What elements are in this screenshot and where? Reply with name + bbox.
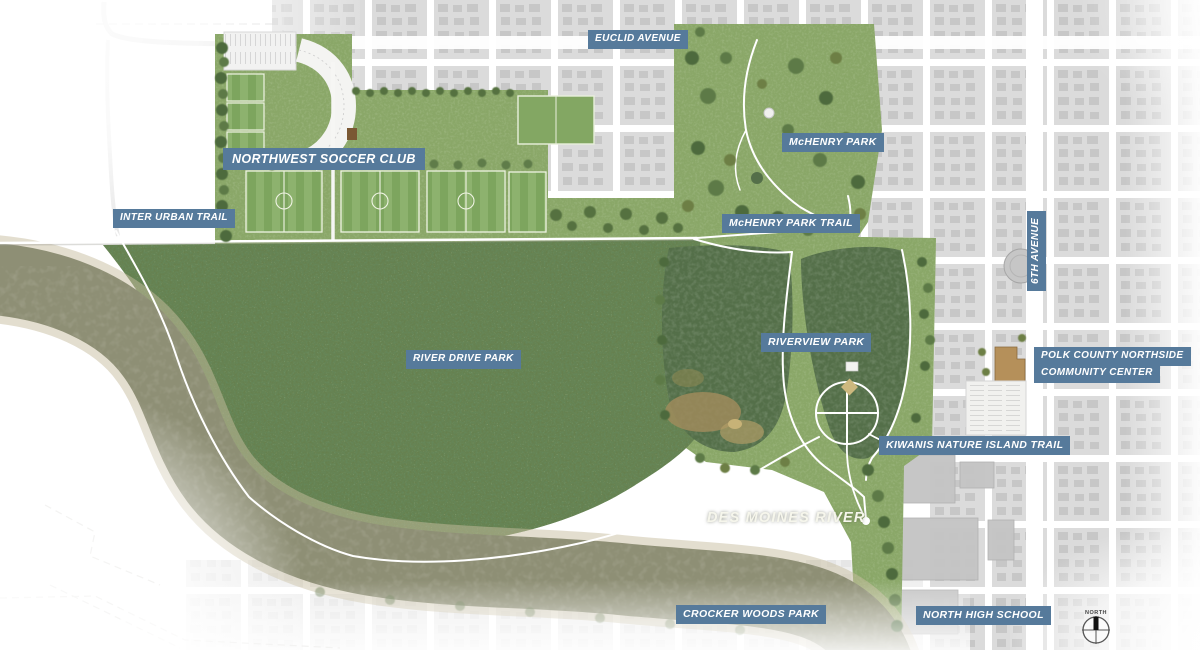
mchenry-pond bbox=[751, 172, 763, 184]
compass-north-label: NORTH bbox=[1085, 610, 1107, 616]
label-river-drive-park: RIVER DRIVE PARK bbox=[406, 350, 521, 369]
site-plan-map: NORTH EUCLID AVENUE NORTHWEST SOCCER CLU… bbox=[0, 0, 1200, 650]
soccer-fields bbox=[246, 171, 546, 232]
fade-bottom bbox=[120, 580, 970, 650]
mchenry-shelter bbox=[764, 108, 774, 118]
label-kiwanis-nature-island-trail: KIWANIS NATURE ISLAND TRAIL bbox=[879, 436, 1070, 455]
label-northwest-soccer-club: NORTHWEST SOCCER CLUB bbox=[223, 148, 425, 170]
label-north-high-school: NORTH HIGH SCHOOL bbox=[916, 606, 1051, 625]
park-shelter bbox=[846, 362, 858, 371]
label-crocker-woods-park: CROCKER WOODS PARK bbox=[676, 605, 826, 624]
label-euclid-avenue: EUCLID AVENUE bbox=[588, 30, 688, 49]
north-needle bbox=[1094, 617, 1099, 631]
label-community-center: COMMUNITY CENTER bbox=[1034, 364, 1160, 383]
practice-fields bbox=[227, 74, 264, 159]
compass: NORTH bbox=[1082, 610, 1110, 644]
label-mchenry-park-trail: McHENRY PARK TRAIL bbox=[722, 214, 860, 233]
label-sixth-avenue: 6TH AVENUE bbox=[1027, 211, 1046, 291]
label-des-moines-river: DES MOINES RIVER bbox=[707, 508, 866, 529]
label-mchenry-park: McHENRY PARK bbox=[782, 133, 884, 152]
clubhouse-building bbox=[347, 128, 357, 140]
label-inter-urban-trail: INTER URBAN TRAIL bbox=[113, 209, 235, 228]
label-polk-county-northside: POLK COUNTY NORTHSIDE bbox=[1034, 347, 1191, 366]
map-artwork: NORTH bbox=[0, 0, 1200, 650]
label-riverview-park: RIVERVIEW PARK bbox=[761, 333, 871, 352]
